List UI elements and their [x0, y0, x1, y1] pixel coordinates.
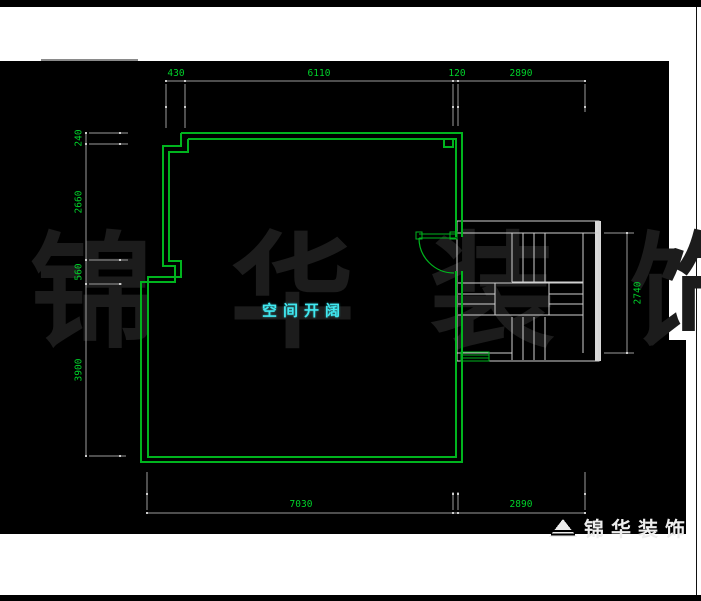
dimension-ticks: [85, 80, 628, 514]
floor-plan-page: { "room_label": { "text": "空间开阔", "color…: [0, 0, 701, 601]
wall-outer-left-bottom: [141, 133, 462, 462]
dim-top-2890: 2890: [510, 69, 533, 79]
dim-bottom-2890: 2890: [510, 500, 533, 510]
stair-center-void: [495, 283, 549, 315]
stair-outer-wall: [457, 221, 599, 361]
dim-left-2660: 2660: [74, 191, 84, 214]
room-label: 空间开阔: [262, 300, 346, 321]
dim-top-120: 120: [448, 69, 465, 79]
dim-bottom-7030: 7030: [290, 500, 313, 510]
stair-winder-treads: [458, 283, 583, 315]
room-walls: [141, 133, 462, 462]
floorplan-drawing: [0, 0, 701, 601]
wall-inner-left-bottom: [148, 139, 456, 457]
stair-upper-treads: [512, 233, 545, 282]
stair-lower-treads: [512, 317, 545, 360]
column-square: [444, 139, 453, 147]
dim-right-2740: 2740: [633, 282, 643, 305]
dim-left-240: 240: [74, 129, 84, 146]
dim-top-430: 430: [167, 69, 184, 79]
wall-inner-top-right: [188, 139, 456, 237]
dim-left-560: 560: [74, 263, 84, 280]
logo-text: 锦华装饰: [584, 513, 692, 542]
dim-left-3900: 3900: [74, 359, 84, 382]
door-swing-arc: [419, 238, 454, 273]
door: [416, 232, 457, 273]
pyramid-logo-icon: [549, 519, 577, 537]
stair-right-wall: [595, 221, 601, 361]
dim-top-6110: 6110: [308, 69, 331, 79]
wall-outer-top-right: [181, 133, 462, 237]
staircase: [457, 221, 601, 361]
